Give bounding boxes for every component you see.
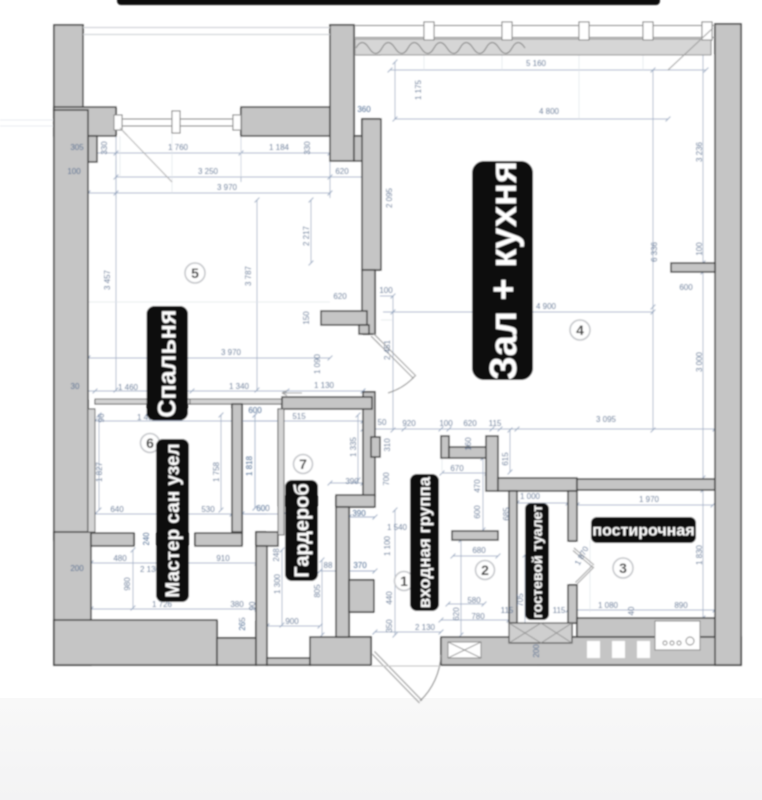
svg-text:470: 470 bbox=[473, 479, 482, 493]
svg-text:600: 600 bbox=[679, 283, 693, 292]
svg-text:1 100: 1 100 bbox=[383, 535, 392, 556]
svg-text:160: 160 bbox=[464, 437, 473, 451]
svg-text:680: 680 bbox=[472, 546, 486, 555]
svg-text:615: 615 bbox=[501, 452, 510, 466]
svg-text:1 970: 1 970 bbox=[639, 495, 660, 504]
svg-text:5 160: 5 160 bbox=[526, 59, 547, 68]
svg-text:1 130: 1 130 bbox=[314, 381, 335, 390]
svg-text:1 175: 1 175 bbox=[414, 79, 423, 100]
svg-text:1 335: 1 335 bbox=[349, 436, 358, 457]
svg-text:Зал + кухня: Зал + кухня bbox=[483, 161, 525, 380]
svg-text:4: 4 bbox=[576, 322, 584, 338]
svg-text:1 830: 1 830 bbox=[695, 544, 704, 565]
svg-text:620: 620 bbox=[333, 292, 347, 301]
svg-text:600: 600 bbox=[248, 406, 262, 415]
svg-text:980: 980 bbox=[123, 577, 132, 591]
svg-text:1 758: 1 758 bbox=[212, 461, 221, 482]
svg-text:2 451: 2 451 bbox=[383, 339, 392, 360]
svg-text:100: 100 bbox=[67, 167, 81, 176]
svg-text:1: 1 bbox=[400, 573, 408, 589]
svg-text:1 760: 1 760 bbox=[168, 143, 189, 152]
svg-text:920: 920 bbox=[402, 419, 416, 428]
svg-text:265: 265 bbox=[238, 617, 247, 631]
svg-text:входная группа: входная группа bbox=[415, 476, 434, 608]
svg-text:360: 360 bbox=[357, 105, 371, 114]
svg-text:3 970: 3 970 bbox=[221, 348, 242, 357]
svg-text:4 800: 4 800 bbox=[539, 107, 560, 116]
svg-text:50: 50 bbox=[378, 418, 387, 427]
svg-text:390: 390 bbox=[345, 477, 359, 486]
svg-text:685: 685 bbox=[502, 507, 511, 521]
svg-text:305: 305 bbox=[70, 143, 84, 152]
svg-text:Мастер сан узел: Мастер сан узел bbox=[163, 443, 184, 597]
svg-text:1 000: 1 000 bbox=[520, 492, 541, 501]
svg-text:600: 600 bbox=[473, 505, 482, 519]
svg-text:гостевой туалет: гостевой туалет bbox=[530, 505, 546, 618]
svg-text:670: 670 bbox=[450, 464, 464, 473]
svg-text:7: 7 bbox=[299, 456, 307, 472]
svg-text:5: 5 bbox=[191, 265, 199, 281]
svg-text:1 540: 1 540 bbox=[387, 523, 408, 532]
svg-text:780: 780 bbox=[471, 612, 485, 621]
svg-text:330: 330 bbox=[303, 141, 312, 155]
svg-text:1 340: 1 340 bbox=[229, 382, 250, 391]
svg-text:1 827: 1 827 bbox=[95, 461, 104, 482]
svg-text:910: 910 bbox=[216, 554, 230, 563]
svg-text:310: 310 bbox=[383, 438, 392, 452]
svg-text:700: 700 bbox=[382, 472, 391, 486]
svg-text:115: 115 bbox=[489, 419, 502, 428]
svg-text:90: 90 bbox=[248, 601, 257, 610]
svg-text:1 818: 1 818 bbox=[245, 455, 254, 476]
svg-text:150: 150 bbox=[302, 311, 311, 325]
svg-text:6 336: 6 336 bbox=[650, 241, 659, 262]
svg-text:248: 248 bbox=[272, 548, 281, 562]
svg-text:3: 3 bbox=[619, 560, 627, 576]
svg-text:2 130: 2 130 bbox=[415, 623, 436, 632]
svg-text:1 080: 1 080 bbox=[598, 601, 619, 610]
svg-text:100: 100 bbox=[695, 242, 704, 256]
svg-text:380: 380 bbox=[230, 600, 244, 609]
svg-text:705: 705 bbox=[516, 593, 525, 607]
svg-text:580: 580 bbox=[467, 596, 481, 605]
svg-text:3 095: 3 095 bbox=[596, 415, 617, 424]
svg-text:2 095: 2 095 bbox=[385, 187, 394, 208]
svg-text:200: 200 bbox=[70, 564, 84, 573]
svg-text:620: 620 bbox=[452, 607, 461, 621]
svg-text:3 970: 3 970 bbox=[217, 183, 238, 192]
svg-text:1 300: 1 300 bbox=[273, 573, 282, 594]
svg-text:805: 805 bbox=[313, 584, 322, 598]
svg-text:3 787: 3 787 bbox=[244, 265, 253, 286]
svg-text:115: 115 bbox=[501, 606, 514, 615]
svg-text:620: 620 bbox=[463, 419, 477, 428]
svg-text:1 090: 1 090 bbox=[313, 353, 322, 374]
svg-text:515: 515 bbox=[292, 412, 306, 421]
svg-text:1 184: 1 184 bbox=[269, 143, 290, 152]
svg-text:88: 88 bbox=[324, 561, 333, 570]
svg-text:2 217: 2 217 bbox=[302, 225, 311, 246]
svg-text:3 250: 3 250 bbox=[198, 167, 219, 176]
svg-text:890: 890 bbox=[674, 601, 688, 610]
svg-text:390: 390 bbox=[352, 509, 366, 518]
svg-text:370: 370 bbox=[353, 561, 367, 570]
svg-text:480: 480 bbox=[113, 554, 127, 563]
svg-text:3 000: 3 000 bbox=[695, 351, 704, 372]
svg-text:3 236: 3 236 bbox=[695, 141, 704, 162]
svg-text:440: 440 bbox=[385, 591, 394, 605]
svg-text:640: 640 bbox=[110, 505, 124, 514]
svg-text:600: 600 bbox=[256, 504, 270, 513]
svg-text:2: 2 bbox=[481, 562, 489, 578]
svg-text:620: 620 bbox=[335, 167, 349, 176]
svg-text:100: 100 bbox=[379, 286, 393, 295]
svg-text:1 460: 1 460 bbox=[118, 383, 139, 392]
svg-text:530: 530 bbox=[201, 505, 215, 514]
svg-text:240: 240 bbox=[142, 532, 151, 546]
svg-text:постирочная: постирочная bbox=[592, 523, 694, 540]
svg-text:96: 96 bbox=[97, 413, 106, 422]
svg-text:330: 330 bbox=[100, 141, 109, 155]
svg-text:115: 115 bbox=[553, 606, 566, 615]
svg-text:30: 30 bbox=[71, 382, 80, 391]
svg-text:3 457: 3 457 bbox=[103, 269, 112, 290]
svg-text:100: 100 bbox=[439, 419, 453, 428]
svg-text:350: 350 bbox=[385, 619, 394, 633]
svg-text:4 900: 4 900 bbox=[536, 302, 557, 311]
svg-text:Гардероб: Гардероб bbox=[292, 483, 314, 578]
svg-text:40: 40 bbox=[627, 606, 636, 615]
svg-text:900: 900 bbox=[285, 617, 299, 626]
svg-text:200: 200 bbox=[532, 644, 541, 658]
svg-text:6: 6 bbox=[146, 435, 154, 451]
svg-text:Спальня: Спальня bbox=[154, 310, 182, 418]
